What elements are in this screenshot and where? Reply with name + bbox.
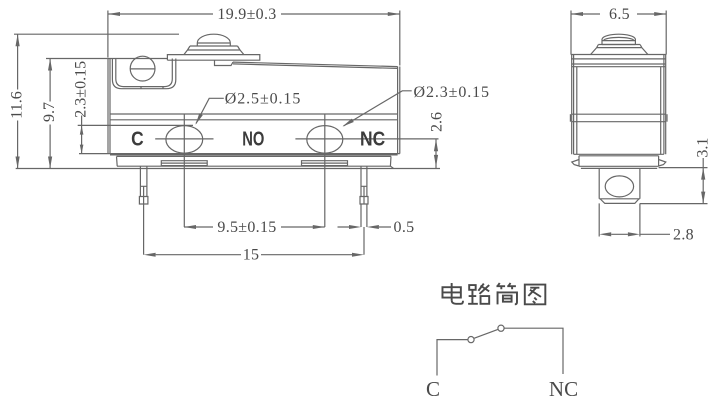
- svg-text:3.1: 3.1: [695, 138, 712, 158]
- svg-text:NO: NO: [242, 127, 264, 150]
- svg-text:11.6: 11.6: [8, 91, 25, 118]
- svg-text:2.3±0.15: 2.3±0.15: [73, 61, 90, 118]
- svg-text:NC: NC: [549, 377, 578, 400]
- svg-text:6.5: 6.5: [609, 6, 630, 23]
- svg-text:0.5: 0.5: [394, 219, 415, 236]
- svg-text:C: C: [131, 128, 144, 151]
- svg-text:NC: NC: [360, 128, 385, 151]
- svg-text:19.9±0.3: 19.9±0.3: [217, 6, 276, 23]
- svg-text:2.8: 2.8: [673, 227, 694, 244]
- svg-text:Ø2.3±0.15: Ø2.3±0.15: [414, 84, 490, 101]
- svg-text:Ø2.5±0.15: Ø2.5±0.15: [225, 91, 301, 108]
- svg-text:15: 15: [243, 247, 260, 264]
- svg-text:C: C: [426, 377, 440, 400]
- svg-text:9.5±0.15: 9.5±0.15: [217, 219, 276, 236]
- svg-text:2.6: 2.6: [429, 112, 446, 132]
- svg-text:9.7: 9.7: [41, 102, 58, 122]
